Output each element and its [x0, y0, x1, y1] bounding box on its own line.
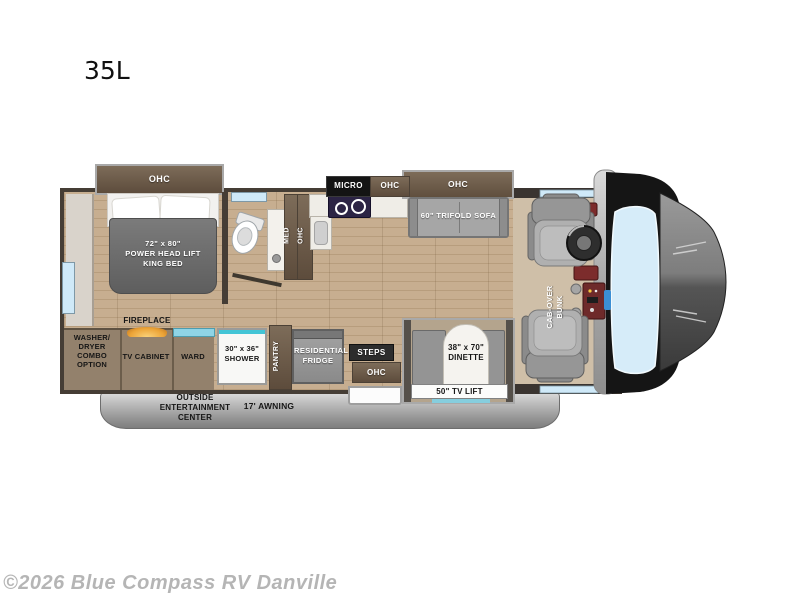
tv-lift: 50" TV LIFT [411, 384, 508, 399]
cooktop-icon [328, 195, 371, 218]
microwave-label: MICRO [327, 177, 370, 194]
entry-ohc-label: OHC [353, 363, 400, 382]
shower-label: 30" x 36" SHOWER [219, 344, 265, 364]
med-label: MED [284, 206, 297, 266]
steps-label: STEPS [350, 345, 393, 360]
tv-cabinet-label: TV CABINET [121, 352, 171, 361]
dinette-slide: 38" x 70" DINETTE 50" TV LIFT [402, 318, 515, 404]
fireplace-label: FIREPLACE [118, 316, 176, 325]
fridge-label: RESIDENTIAL FRIDGE [294, 346, 342, 366]
trifold-sofa: 60" TRIFOLD SOFA [408, 197, 509, 238]
rear-window [62, 262, 75, 314]
tv-lift-label: 50" TV LIFT [412, 385, 507, 398]
floorplan-model-title: 35L [84, 56, 130, 85]
floorplan-page: 35L ©2026 Blue Compass RV Danville OUTSI… [0, 0, 800, 600]
cab-over-bunk-label: CAB-OVER BUNK [545, 267, 567, 347]
entry-door-step [348, 386, 402, 405]
bathroom-vanity-sink [267, 209, 285, 271]
kitchen-ohc-cabinet: OHC [370, 176, 410, 197]
kitchen-sink [310, 216, 332, 250]
fireplace-glow-icon [127, 327, 167, 337]
sofa-ohc-label: OHC [404, 172, 512, 197]
bedroom-ohc-label: OHC [97, 166, 222, 193]
dinette-table: 38" x 70" DINETTE [443, 324, 489, 390]
wardrobe-label: WARD [172, 352, 214, 361]
burner-icon [335, 202, 348, 215]
washer-dryer-label: WASHER/ DRYER COMBO OPTION [66, 333, 118, 370]
bathroom-ohc-label: OHC [298, 206, 311, 266]
windshield-glass [611, 207, 659, 374]
king-bed: 72" x 80" POWER HEAD LIFT KING BED [109, 218, 217, 294]
cab-window-bottom [540, 386, 598, 393]
bathroom-window [231, 192, 267, 202]
sofa-label: 60" TRIFOLD SOFA [410, 211, 507, 220]
faucet-icon [272, 254, 281, 263]
tv-screen-icon [432, 399, 490, 403]
kitchen-ohc-label: OHC [371, 177, 409, 194]
king-bed-label: 72" x 80" POWER HEAD LIFT KING BED [110, 239, 216, 268]
entry-steps: STEPS [349, 344, 394, 361]
dealer-watermark: ©2026 Blue Compass RV Danville [3, 572, 337, 595]
sofa-ohc-cabinet: OHC [402, 170, 514, 199]
cab-front-graphic [505, 160, 752, 407]
shower: 30" x 36" SHOWER [217, 328, 267, 385]
steering-wheel-icon [567, 226, 601, 260]
sink-basin-icon [314, 221, 328, 245]
microwave-cabinet: MICRO [326, 176, 371, 197]
ward-window [173, 328, 215, 337]
burner-icon [351, 199, 366, 214]
entry-ohc-cabinet: OHC [352, 362, 401, 383]
dinette-label: 38" x 70" DINETTE [444, 343, 488, 364]
awning-label: 17' AWNING [227, 401, 311, 411]
front-nose [660, 193, 726, 371]
dinette-bench [412, 330, 446, 385]
pantry-label: PANTRY [273, 326, 287, 386]
bedroom-ohc-cabinet: OHC [95, 164, 224, 195]
residential-fridge: RESIDENTIAL FRIDGE [292, 329, 344, 384]
